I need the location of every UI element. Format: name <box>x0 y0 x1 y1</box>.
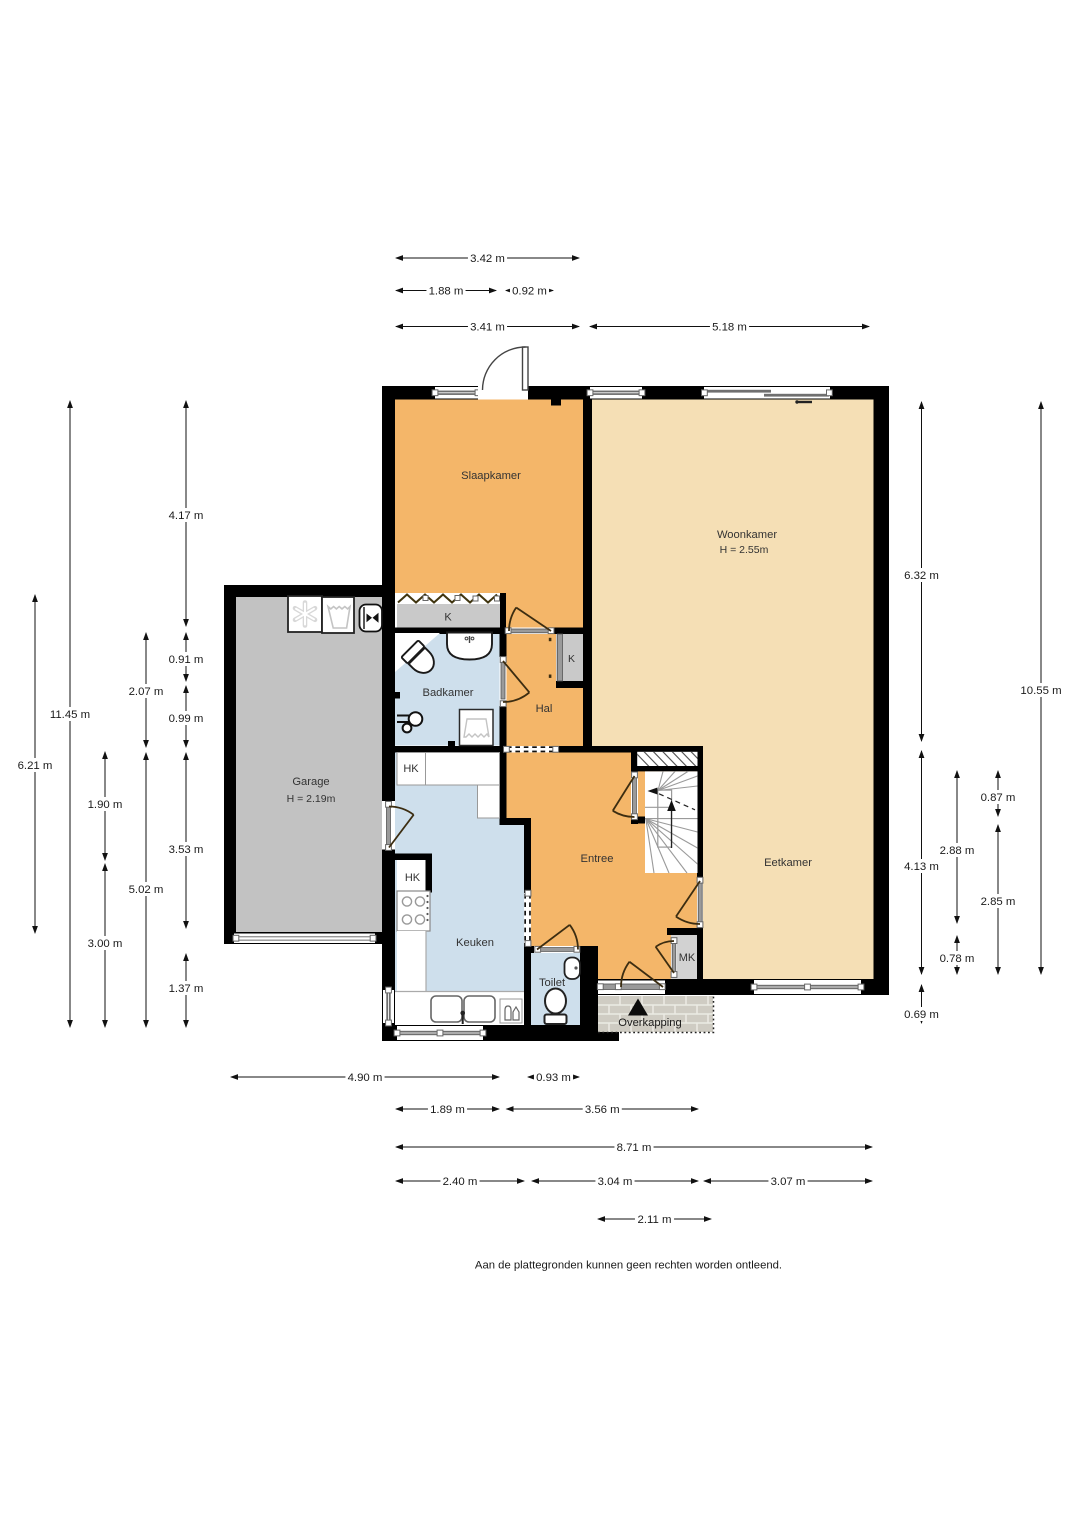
svg-text:Eetkamer: Eetkamer <box>764 857 812 869</box>
svg-text:Hal: Hal <box>536 703 553 715</box>
svg-text:1.89 m: 1.89 m <box>430 1104 465 1116</box>
svg-text:0.93 m: 0.93 m <box>536 1072 571 1084</box>
svg-text:K: K <box>444 612 452 624</box>
svg-text:1.37 m: 1.37 m <box>169 983 204 995</box>
svg-text:HK: HK <box>403 763 419 775</box>
svg-text:0.99 m: 0.99 m <box>169 713 204 725</box>
svg-text:4.13 m: 4.13 m <box>904 861 939 873</box>
svg-text:MK: MK <box>679 952 696 964</box>
svg-text:0.78 m: 0.78 m <box>940 953 975 965</box>
svg-text:3.56 m: 3.56 m <box>585 1104 620 1116</box>
svg-text:2.11 m: 2.11 m <box>638 1214 672 1226</box>
svg-text:1.88 m: 1.88 m <box>429 286 464 298</box>
svg-text:0.87 m: 0.87 m <box>981 792 1016 804</box>
svg-text:6.32 m: 6.32 m <box>904 570 939 582</box>
svg-text:8.71 m: 8.71 m <box>617 1142 652 1154</box>
svg-text:Toilet: Toilet <box>539 977 566 989</box>
svg-text:0.69 m: 0.69 m <box>904 1009 939 1021</box>
svg-text:Woonkamer: Woonkamer <box>717 529 777 541</box>
svg-text:2.40 m: 2.40 m <box>443 1176 478 1188</box>
svg-text:1.90 m: 1.90 m <box>88 799 123 811</box>
svg-text:HK: HK <box>405 872 421 884</box>
svg-text:0.92 m: 0.92 m <box>512 286 547 298</box>
svg-text:6.21 m: 6.21 m <box>18 760 53 772</box>
svg-text:2.07 m: 2.07 m <box>129 686 164 698</box>
svg-text:H = 2.55m: H = 2.55m <box>720 544 769 556</box>
svg-text:3.53 m: 3.53 m <box>169 844 204 856</box>
svg-text:4.90 m: 4.90 m <box>348 1072 383 1084</box>
svg-text:K: K <box>568 653 575 665</box>
svg-text:Entree: Entree <box>581 853 614 865</box>
svg-text:3.07 m: 3.07 m <box>771 1176 806 1188</box>
svg-text:2.88 m: 2.88 m <box>940 845 975 857</box>
svg-text:11.45 m: 11.45 m <box>50 709 90 721</box>
svg-text:Badkamer: Badkamer <box>423 687 474 699</box>
svg-text:3.42 m: 3.42 m <box>470 253 505 265</box>
svg-text:0.91 m: 0.91 m <box>169 654 204 666</box>
svg-text:Slaapkamer: Slaapkamer <box>461 470 521 482</box>
svg-text:3.00 m: 3.00 m <box>88 938 123 950</box>
svg-text:Garage: Garage <box>292 776 329 788</box>
svg-text:H = 2.19m: H = 2.19m <box>287 793 336 805</box>
svg-text:Aan de plattegronden kunnen ge: Aan de plattegronden kunnen geen rechten… <box>475 1260 782 1272</box>
svg-text:10.55 m: 10.55 m <box>1020 685 1061 697</box>
svg-text:4.17 m: 4.17 m <box>169 510 204 522</box>
svg-text:5.02 m: 5.02 m <box>129 884 164 896</box>
svg-text:5.18 m: 5.18 m <box>712 322 747 334</box>
svg-text:3.41 m: 3.41 m <box>470 322 505 334</box>
svg-text:2.85 m: 2.85 m <box>981 896 1016 908</box>
svg-text:Keuken: Keuken <box>456 937 494 949</box>
svg-text:Overkapping: Overkapping <box>618 1017 681 1029</box>
svg-text:3.04 m: 3.04 m <box>598 1176 633 1188</box>
